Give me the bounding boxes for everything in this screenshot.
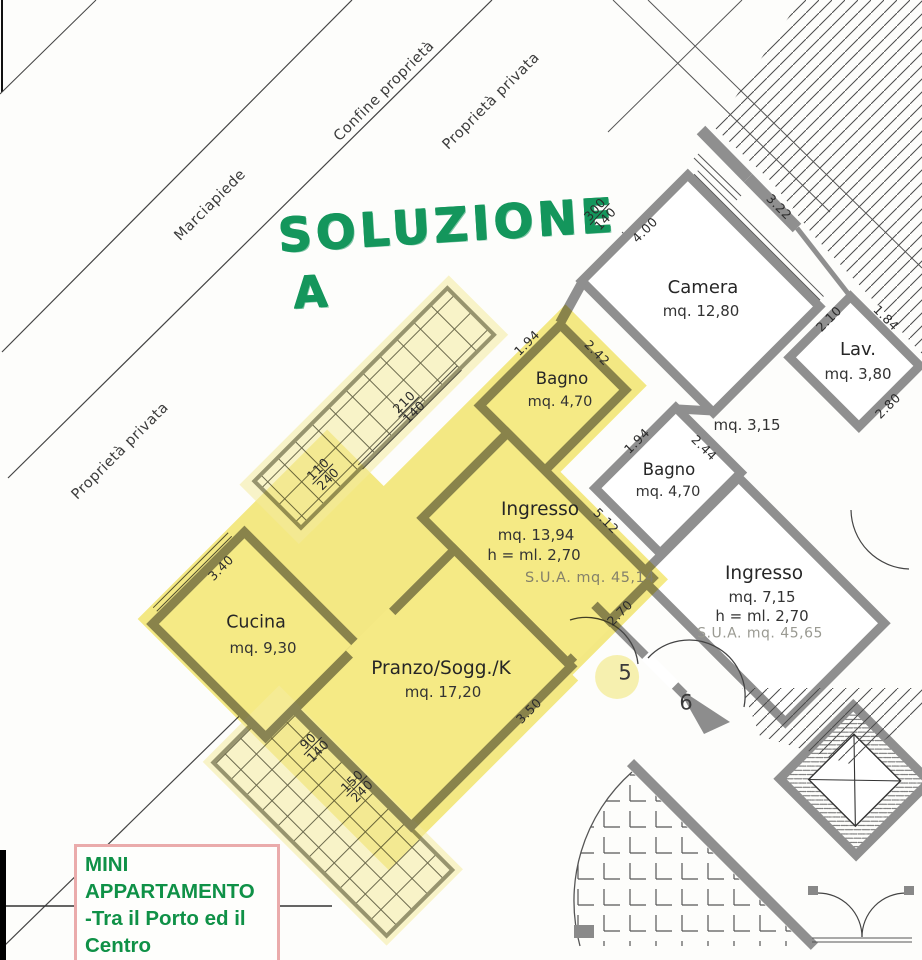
room-area-ingresso-a: mq. 13,94 xyxy=(498,527,575,544)
room-area-bagno-b: mq. 4,70 xyxy=(636,485,701,501)
room-label-bagno-b: Bagno xyxy=(643,461,695,479)
room-area-pranzo: mq. 17,20 xyxy=(405,684,482,701)
room-label-bagno-a: Bagno xyxy=(536,370,588,388)
floor-plan-scan: SOLUZIONE A Confine proprietà Proprietà … xyxy=(0,0,922,960)
room-area-cucina: mq. 9,30 xyxy=(229,640,296,657)
handwritten-solution-letter: A xyxy=(292,268,333,318)
room-area-lavanderia: mq. 3,80 xyxy=(824,366,891,383)
listing-note-line2: APPARTAMENTO xyxy=(85,878,269,905)
room-label-lavanderia: Lav. xyxy=(840,340,876,360)
room-height-ingresso-b: h = ml. 2,70 xyxy=(715,608,808,625)
room-area-corridoio: mq. 3,15 xyxy=(713,417,780,434)
room-sua-ingresso-a: S.U.A. mq. 45,14 xyxy=(525,571,655,587)
room-label-camera: Camera xyxy=(668,278,739,298)
room-sua-ingresso-b: S.U.A. mq. 45,65 xyxy=(697,626,823,641)
listing-note-line4: Centro xyxy=(85,932,269,959)
room-label-cucina: Cucina xyxy=(226,613,286,632)
unit-number-5: 5 xyxy=(618,661,631,684)
room-area-bagno-a: mq. 4,70 xyxy=(528,395,593,411)
room-height-ingresso-a: h = ml. 2,70 xyxy=(487,547,580,564)
room-label-ingresso-a: Ingresso xyxy=(501,500,579,520)
listing-note-line3: -Tra il Porto ed il xyxy=(85,905,269,932)
room-label-ingresso-b: Ingresso xyxy=(725,564,803,584)
room-area-camera: mq. 12,80 xyxy=(663,303,740,320)
room-label-pranzo: Pranzo/Sogg./K xyxy=(371,659,511,679)
unit-number-6: 6 xyxy=(679,691,692,714)
listing-note-box: MINI APPARTAMENTO -Tra il Porto ed il Ce… xyxy=(74,844,280,960)
listing-note-line1: MINI xyxy=(85,851,269,878)
room-area-ingresso-b: mq. 7,15 xyxy=(728,589,795,606)
